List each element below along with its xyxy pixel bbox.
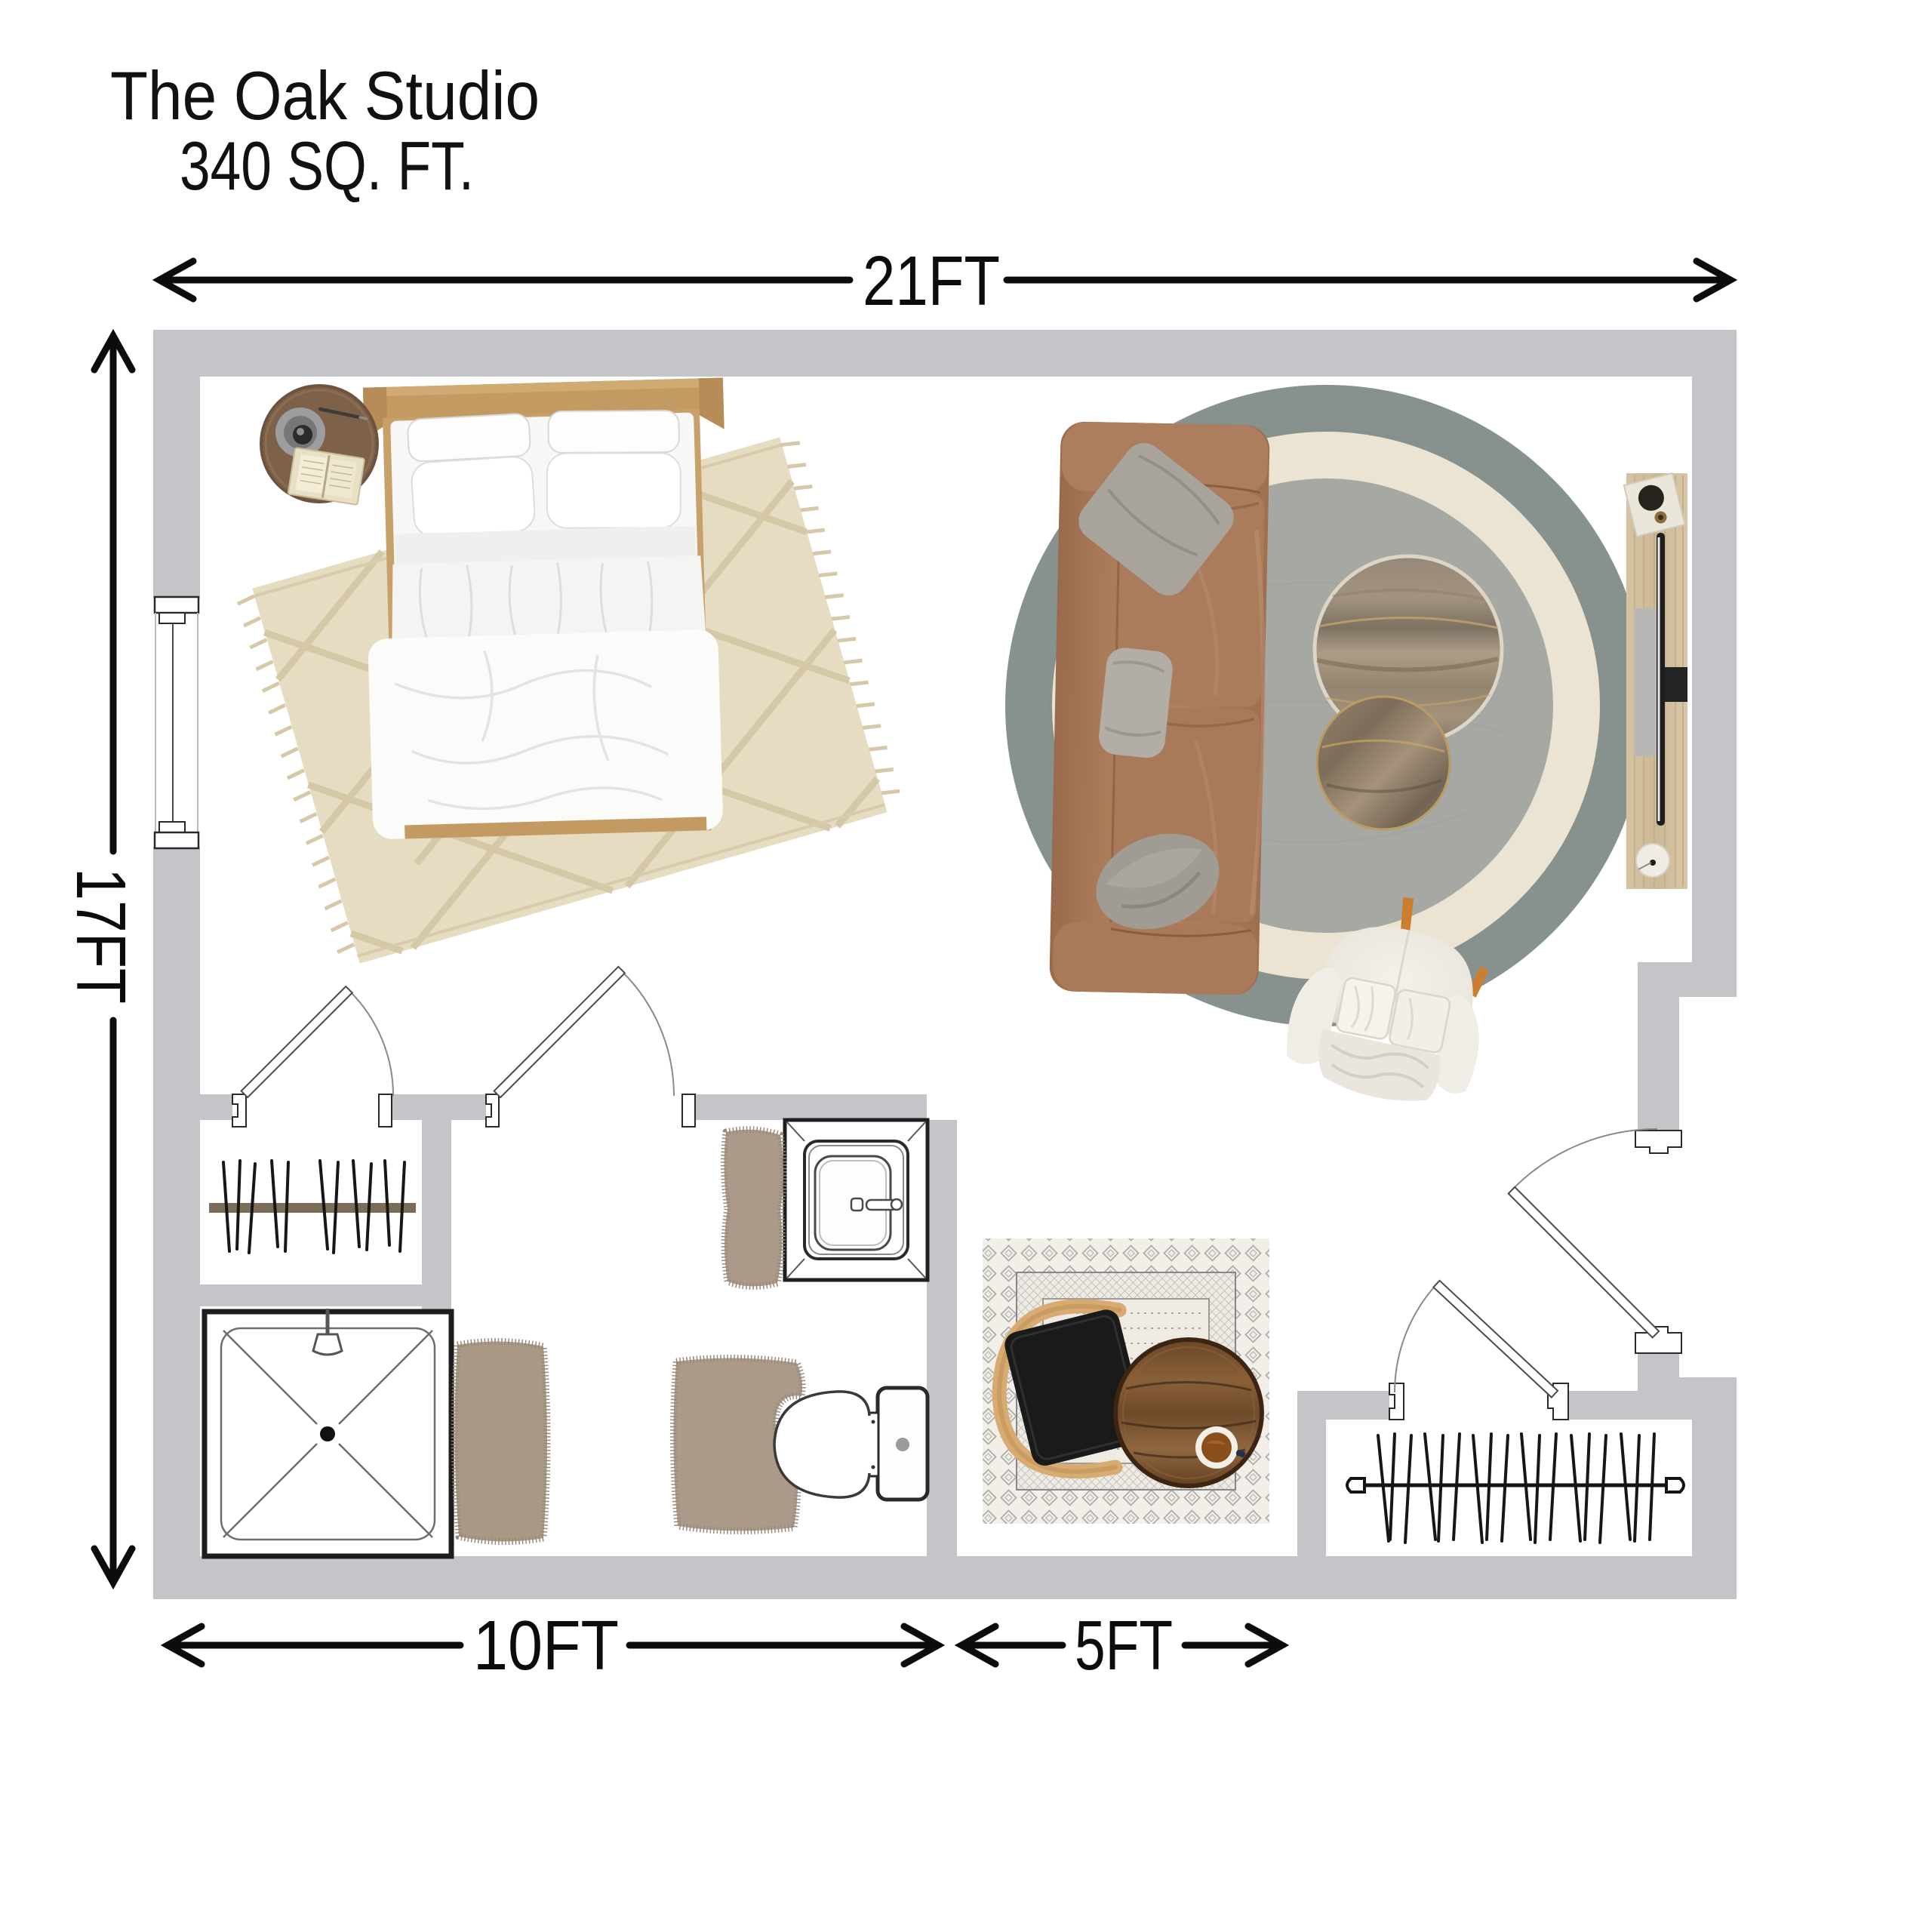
svg-text:5FT: 5FT [1075, 1606, 1173, 1684]
svg-text:10FT: 10FT [473, 1606, 619, 1684]
svg-text:The Oak Studio: The Oak Studio [110, 58, 540, 134]
svg-text:340 SQ. FT.: 340 SQ. FT. [180, 128, 474, 205]
svg-text:17FT: 17FT [62, 868, 140, 1004]
svg-text:21FT: 21FT [863, 241, 1000, 320]
